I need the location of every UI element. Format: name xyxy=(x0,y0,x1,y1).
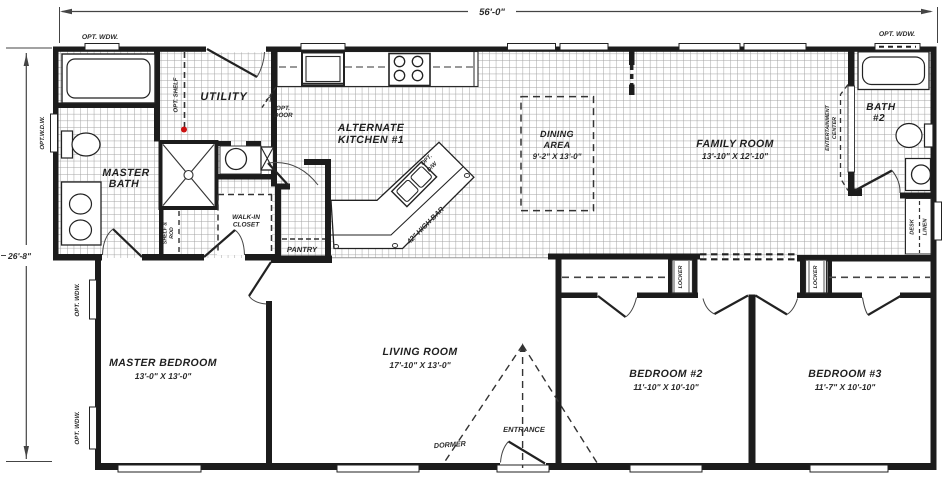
svg-text:DOOR: DOOR xyxy=(274,112,293,119)
svg-text:LINEN: LINEN xyxy=(923,218,929,236)
svg-text:OPT.W.D.W.: OPT.W.D.W. xyxy=(39,116,46,150)
svg-text:OPT. WDW.: OPT. WDW. xyxy=(74,411,81,444)
svg-text:MASTER BEDROOM: MASTER BEDROOM xyxy=(109,357,217,369)
svg-text:ALTERNATE: ALTERNATE xyxy=(337,122,405,134)
svg-text:DINING: DINING xyxy=(540,129,574,139)
svg-text:13'-0" X 13'-0": 13'-0" X 13'-0" xyxy=(135,371,192,381)
svg-text:DESK: DESK xyxy=(910,218,916,235)
svg-text:BATH: BATH xyxy=(866,102,896,113)
svg-text:AREA: AREA xyxy=(542,140,570,150)
svg-text:CLOSET: CLOSET xyxy=(233,222,260,229)
svg-text:FAMILY ROOM: FAMILY ROOM xyxy=(696,138,774,150)
svg-text:OPT. WDW.: OPT. WDW. xyxy=(74,283,81,316)
svg-text:KITCHEN #1: KITCHEN #1 xyxy=(338,134,404,146)
svg-text:ENTRANCE: ENTRANCE xyxy=(503,425,546,434)
svg-text:OPT. WDW.: OPT. WDW. xyxy=(82,34,118,41)
svg-text:OPT.: OPT. xyxy=(276,105,290,112)
svg-text:11'-10" X 10'-10": 11'-10" X 10'-10" xyxy=(633,382,699,392)
svg-text:#2: #2 xyxy=(873,113,885,124)
svg-text:CENTER: CENTER xyxy=(832,117,838,139)
svg-text:BEDROOM #3: BEDROOM #3 xyxy=(808,368,881,380)
svg-text:13'-10" X 12'-10": 13'-10" X 12'-10" xyxy=(702,151,769,161)
svg-text:26'-8": 26'-8" xyxy=(7,251,32,261)
svg-text:LIVING ROOM: LIVING ROOM xyxy=(383,346,458,358)
svg-text:SHELF &: SHELF & xyxy=(163,222,169,244)
svg-text:OPT. SHELF: OPT. SHELF xyxy=(173,77,180,112)
svg-text:9'-2" X 13'-0": 9'-2" X 13'-0" xyxy=(533,152,582,161)
svg-text:OPT. WDW.: OPT. WDW. xyxy=(879,31,915,38)
svg-text:WALK-IN: WALK-IN xyxy=(232,214,260,221)
svg-text:LOCKER: LOCKER xyxy=(678,266,684,289)
svg-text:ENTERTAINMENT: ENTERTAINMENT xyxy=(825,104,831,150)
svg-text:BEDROOM #2: BEDROOM #2 xyxy=(629,368,702,380)
svg-text:BATH: BATH xyxy=(109,178,139,190)
svg-text:PANTRY: PANTRY xyxy=(287,245,318,254)
svg-text:UTILITY: UTILITY xyxy=(200,91,248,103)
svg-text:11'-7" X 10'-10": 11'-7" X 10'-10" xyxy=(815,382,877,392)
svg-text:LOCKER: LOCKER xyxy=(813,266,819,289)
svg-text:17'-10" X 13'-0": 17'-10" X 13'-0" xyxy=(389,360,451,370)
svg-text:ROD: ROD xyxy=(169,227,175,239)
svg-text:56'-0": 56'-0" xyxy=(479,7,505,18)
